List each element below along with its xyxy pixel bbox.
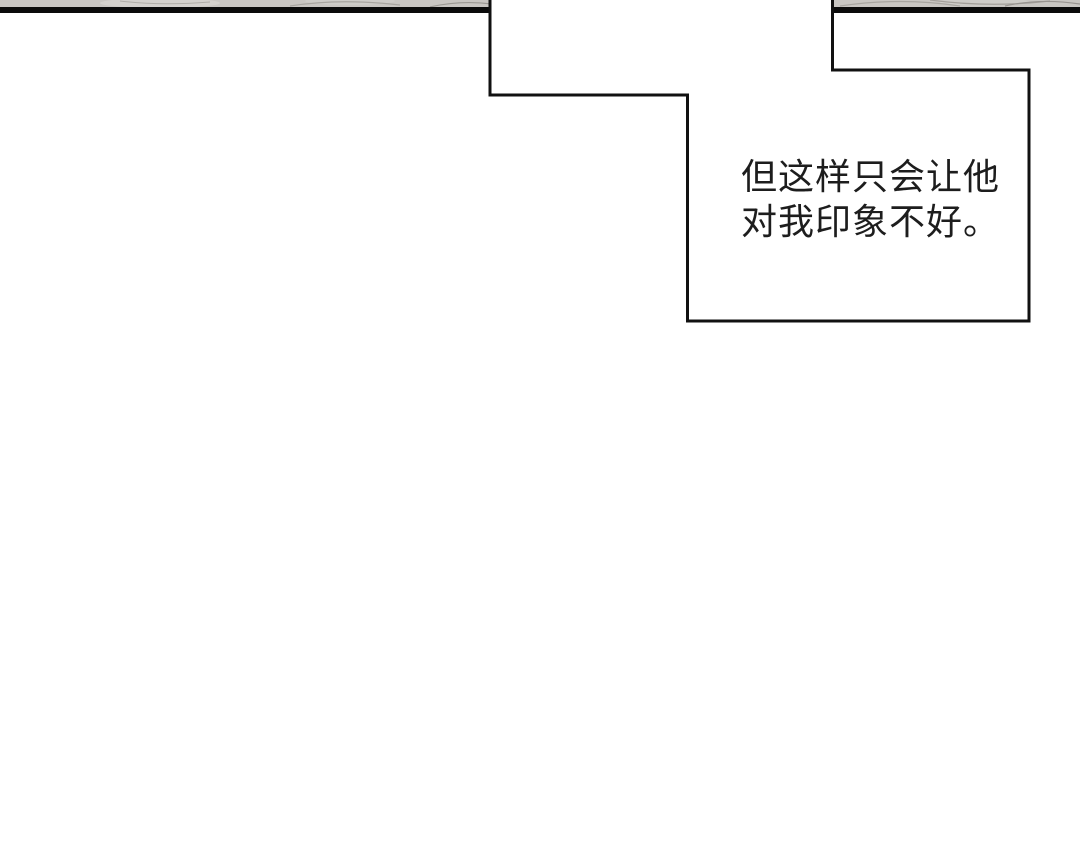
bubble-line-1: 但这样只会让他 xyxy=(741,155,1000,200)
speech-bubble-text: 但这样只会让他 对我印象不好。 xyxy=(741,155,1000,245)
comic-page: 但这样只会让他 对我印象不好。 xyxy=(0,0,1080,843)
bubble-line-2: 对我印象不好。 xyxy=(741,200,1000,245)
speech-bubble xyxy=(0,0,1080,843)
